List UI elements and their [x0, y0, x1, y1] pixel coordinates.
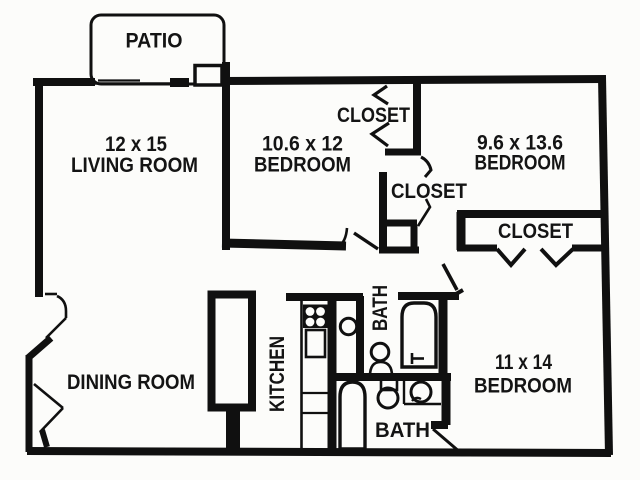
svg-text:BATH: BATH	[369, 285, 392, 331]
svg-text:CLOSET: CLOSET	[337, 104, 410, 127]
svg-text:BEDROOM: BEDROOM	[474, 375, 572, 398]
svg-text:BEDROOM: BEDROOM	[475, 152, 566, 175]
svg-text:CLOSET: CLOSET	[391, 180, 467, 203]
svg-text:10.6 x 12: 10.6 x 12	[262, 133, 343, 156]
svg-text:CLOSET: CLOSET	[498, 220, 573, 243]
svg-text:11 x 14: 11 x 14	[495, 351, 552, 374]
svg-text:BATH: BATH	[375, 419, 430, 442]
svg-text:12 x 15: 12 x 15	[105, 133, 167, 156]
svg-text:DINING ROOM: DINING ROOM	[67, 371, 195, 394]
svg-text:PATIO: PATIO	[126, 30, 183, 53]
svg-text:BEDROOM: BEDROOM	[254, 154, 351, 177]
svg-text:LIVING ROOM: LIVING ROOM	[71, 154, 198, 177]
svg-text:KITCHEN: KITCHEN	[266, 336, 289, 412]
